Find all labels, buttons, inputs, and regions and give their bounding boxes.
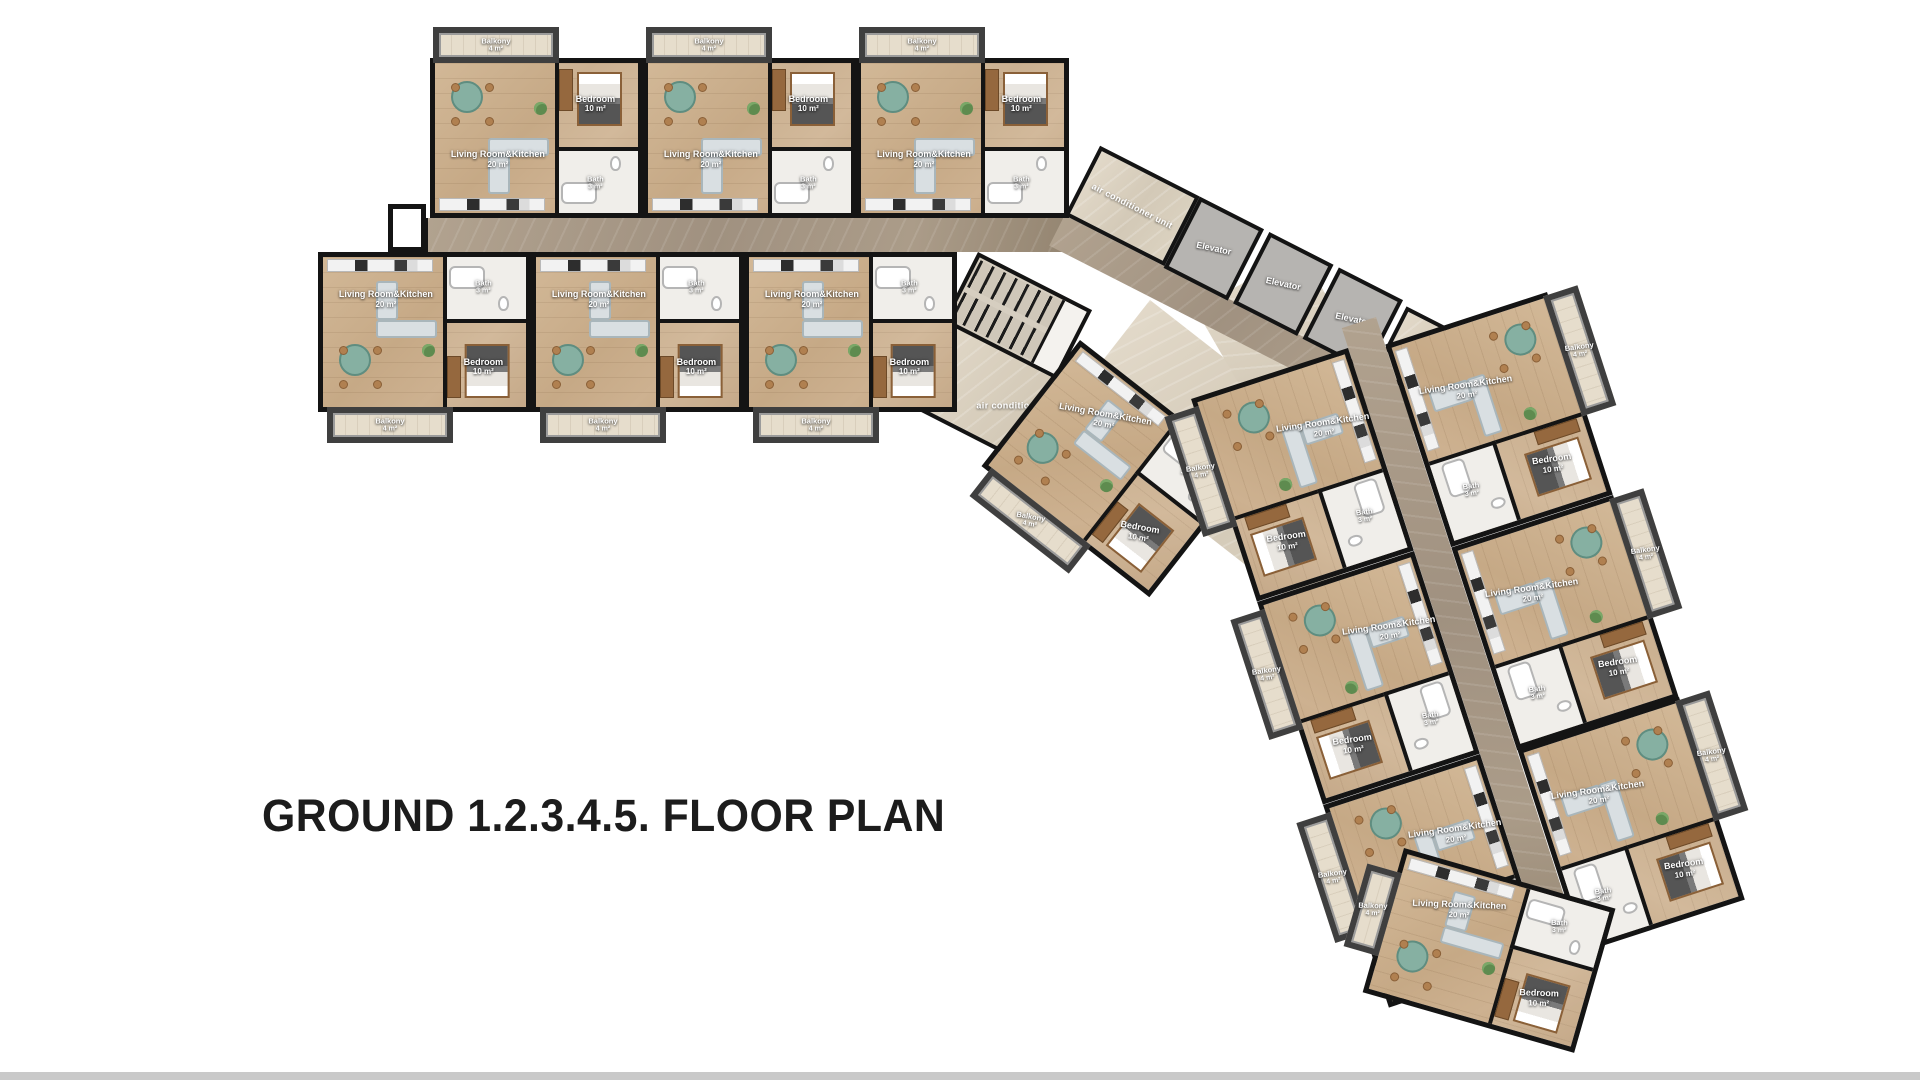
room-label-bath: Bath 3 m² xyxy=(1013,174,1030,191)
plant xyxy=(534,102,547,115)
chair xyxy=(765,380,774,389)
chair xyxy=(373,346,382,355)
balcony: Balkony 4 m² xyxy=(1543,285,1616,416)
plant xyxy=(1480,961,1496,977)
toilet xyxy=(1036,156,1047,171)
chair xyxy=(911,117,920,126)
balcony-label: Balkony 4 m² xyxy=(1185,461,1216,482)
chair xyxy=(1012,454,1025,467)
room-label-living: Living Room&Kitchen 20 m² xyxy=(765,289,859,309)
balcony-label: Balkony 4 m² xyxy=(1317,867,1348,888)
wardrobe xyxy=(772,69,786,111)
chair xyxy=(451,117,460,126)
kitchen-counter xyxy=(865,198,971,211)
plant xyxy=(1655,811,1671,827)
plant xyxy=(960,102,973,115)
chair xyxy=(1597,556,1608,567)
chair xyxy=(1554,534,1565,545)
balcony-label: Balkony 4 m² xyxy=(694,36,723,53)
plant xyxy=(422,344,435,357)
balcony-label: Balkony 4 m² xyxy=(1564,340,1595,361)
room-label-bath: Bath 3 m² xyxy=(1528,684,1547,704)
elevator-label: Elevator xyxy=(1265,275,1302,293)
chair xyxy=(586,346,595,355)
chair xyxy=(877,117,886,126)
chair xyxy=(339,380,348,389)
chair xyxy=(1531,353,1542,364)
bottom-edge-bar xyxy=(0,1072,1920,1080)
chair xyxy=(1330,633,1341,644)
kitchen-counter xyxy=(327,259,433,272)
chair xyxy=(552,380,561,389)
wardrobe xyxy=(447,356,461,398)
room-label-living: Living Room&Kitchen 20 m² xyxy=(451,149,545,169)
balcony-label: Balkony 4 m² xyxy=(907,36,936,53)
room-label-bedroom: Bedroom 10 m² xyxy=(789,93,829,113)
chair xyxy=(1364,847,1375,858)
chair xyxy=(698,117,707,126)
plant xyxy=(848,344,861,357)
plant xyxy=(1278,477,1294,493)
balcony-label: Balkony 4 m² xyxy=(1696,745,1727,766)
kitchen-counter xyxy=(753,259,859,272)
air-conditioner-label: air conditioner unit xyxy=(1090,181,1174,231)
apartment-unit: Living Room&Kitchen 20 m² Bedroom 10 m² … xyxy=(643,58,856,218)
balcony-label: Balkony 4 m² xyxy=(801,416,830,433)
room-label-bedroom: Bedroom 10 m² xyxy=(1002,93,1042,113)
dining-table xyxy=(1392,937,1432,977)
wardrobe xyxy=(660,356,674,398)
chair xyxy=(1421,981,1432,992)
room-label-bath: Bath 3 m² xyxy=(587,174,604,191)
corridor xyxy=(424,218,1070,252)
apartment-unit: Living Room&Kitchen 20 m² Bedroom 10 m² … xyxy=(744,252,957,412)
kitchen-counter xyxy=(439,198,545,211)
room-label-living: Living Room&Kitchen 20 m² xyxy=(877,149,971,169)
room-label-bedroom: Bedroom 10 m² xyxy=(890,356,930,376)
kitchen-counter xyxy=(652,198,758,211)
chair xyxy=(799,346,808,355)
balcony: Balkony 4 m² xyxy=(1609,488,1682,619)
plant xyxy=(1344,680,1360,696)
balcony: Balkony 4 m² xyxy=(540,407,666,443)
chair xyxy=(1039,475,1052,488)
sofa xyxy=(376,320,437,338)
toilet xyxy=(610,156,621,171)
balcony: Balkony 4 m² xyxy=(753,407,879,443)
apartment-unit: Living Room&Kitchen 20 m² Bedroom 10 m² … xyxy=(856,58,1069,218)
room-label-bath: Bath 3 m² xyxy=(1462,481,1481,501)
chair xyxy=(698,83,707,92)
toilet xyxy=(711,296,722,311)
kitchen-counter xyxy=(540,259,646,272)
chair xyxy=(1264,430,1275,441)
chair xyxy=(485,117,494,126)
room-label-bath: Bath 3 m² xyxy=(1551,918,1568,936)
room-label-bedroom: Bedroom 10 m² xyxy=(1519,987,1559,1009)
room-label-bath: Bath 3 m² xyxy=(1355,507,1374,527)
chair xyxy=(485,83,494,92)
elevator-label: Elevator xyxy=(1195,240,1232,258)
balcony-label: Balkony 4 m² xyxy=(1630,543,1661,564)
chair xyxy=(1663,758,1674,769)
chair xyxy=(664,117,673,126)
chair xyxy=(1222,409,1233,420)
chair xyxy=(1232,441,1243,452)
chair xyxy=(1060,448,1073,461)
toilet xyxy=(498,296,509,311)
room-label-living: Living Room&Kitchen 20 m² xyxy=(1412,898,1507,922)
chair xyxy=(1288,612,1299,623)
chair xyxy=(799,380,808,389)
sofa xyxy=(802,320,863,338)
room-label-bath: Bath 3 m² xyxy=(688,278,705,295)
sofa xyxy=(1439,926,1504,960)
plant xyxy=(635,344,648,357)
room-label-bath: Bath 3 m² xyxy=(901,278,918,295)
balcony-label: Balkony 4 m² xyxy=(588,416,617,433)
balcony-label: Balkony 4 m² xyxy=(1251,664,1282,685)
plan-title: GROUND 1.2.3.4.5. FLOOR PLAN xyxy=(262,790,945,842)
chair xyxy=(1431,948,1442,959)
balcony-label: Balkony 4 m² xyxy=(481,36,510,53)
chair xyxy=(1354,815,1365,826)
corridor-notch xyxy=(388,204,426,252)
floor-plan-canvas: air conditioner unit air conditioner uni… xyxy=(0,0,1920,1080)
room-label-living: Living Room&Kitchen 20 m² xyxy=(664,149,758,169)
balcony: Balkony 4 m² xyxy=(1230,609,1303,740)
balcony: Balkony 4 m² xyxy=(327,407,453,443)
chair xyxy=(911,83,920,92)
chair xyxy=(1396,836,1407,847)
room-label-living: Living Room&Kitchen 20 m² xyxy=(552,289,646,309)
apartment-unit: Living Room&Kitchen 20 m² Bedroom 10 m² … xyxy=(531,252,744,412)
chair xyxy=(1389,971,1400,982)
balcony: Balkony 4 m² xyxy=(433,27,559,63)
sofa xyxy=(589,320,650,338)
apartment-unit: Living Room&Kitchen 20 m² Bedroom 10 m² … xyxy=(318,252,531,412)
toilet xyxy=(924,296,935,311)
plant xyxy=(1589,609,1605,625)
balcony: Balkony 4 m² xyxy=(859,27,985,63)
plant xyxy=(747,102,760,115)
balcony: Balkony 4 m² xyxy=(1675,690,1748,821)
toilet xyxy=(823,156,834,171)
wardrobe xyxy=(985,69,999,111)
chair xyxy=(586,380,595,389)
chair xyxy=(373,380,382,389)
chair xyxy=(1488,331,1499,342)
chair xyxy=(1298,644,1309,655)
chair xyxy=(1620,736,1631,747)
wardrobe xyxy=(873,356,887,398)
room-label-bath: Bath 3 m² xyxy=(800,174,817,191)
balcony: Balkony 4 m² xyxy=(646,27,772,63)
plant xyxy=(1098,477,1116,495)
room-label-bedroom: Bedroom 10 m² xyxy=(464,356,504,376)
room-label-living: Living Room&Kitchen 20 m² xyxy=(339,289,433,309)
balcony: Balkony 4 m² xyxy=(970,468,1091,574)
balcony-label: Balkony 4 m² xyxy=(1014,510,1046,532)
balcony-label: Balkony 4 m² xyxy=(375,416,404,433)
balcony-label: Balkony 4 m² xyxy=(1358,901,1388,919)
wardrobe xyxy=(559,69,573,111)
plant xyxy=(1523,406,1539,422)
room-label-bath: Bath 3 m² xyxy=(1421,710,1440,730)
room-label-bedroom: Bedroom 10 m² xyxy=(677,356,717,376)
room-label-bath: Bath 3 m² xyxy=(1594,886,1613,906)
apartment-unit: Living Room&Kitchen 20 m² Bedroom 10 m² … xyxy=(430,58,643,218)
room-label-bath: Bath 3 m² xyxy=(475,278,492,295)
room-label-bedroom: Bedroom 10 m² xyxy=(576,93,616,113)
